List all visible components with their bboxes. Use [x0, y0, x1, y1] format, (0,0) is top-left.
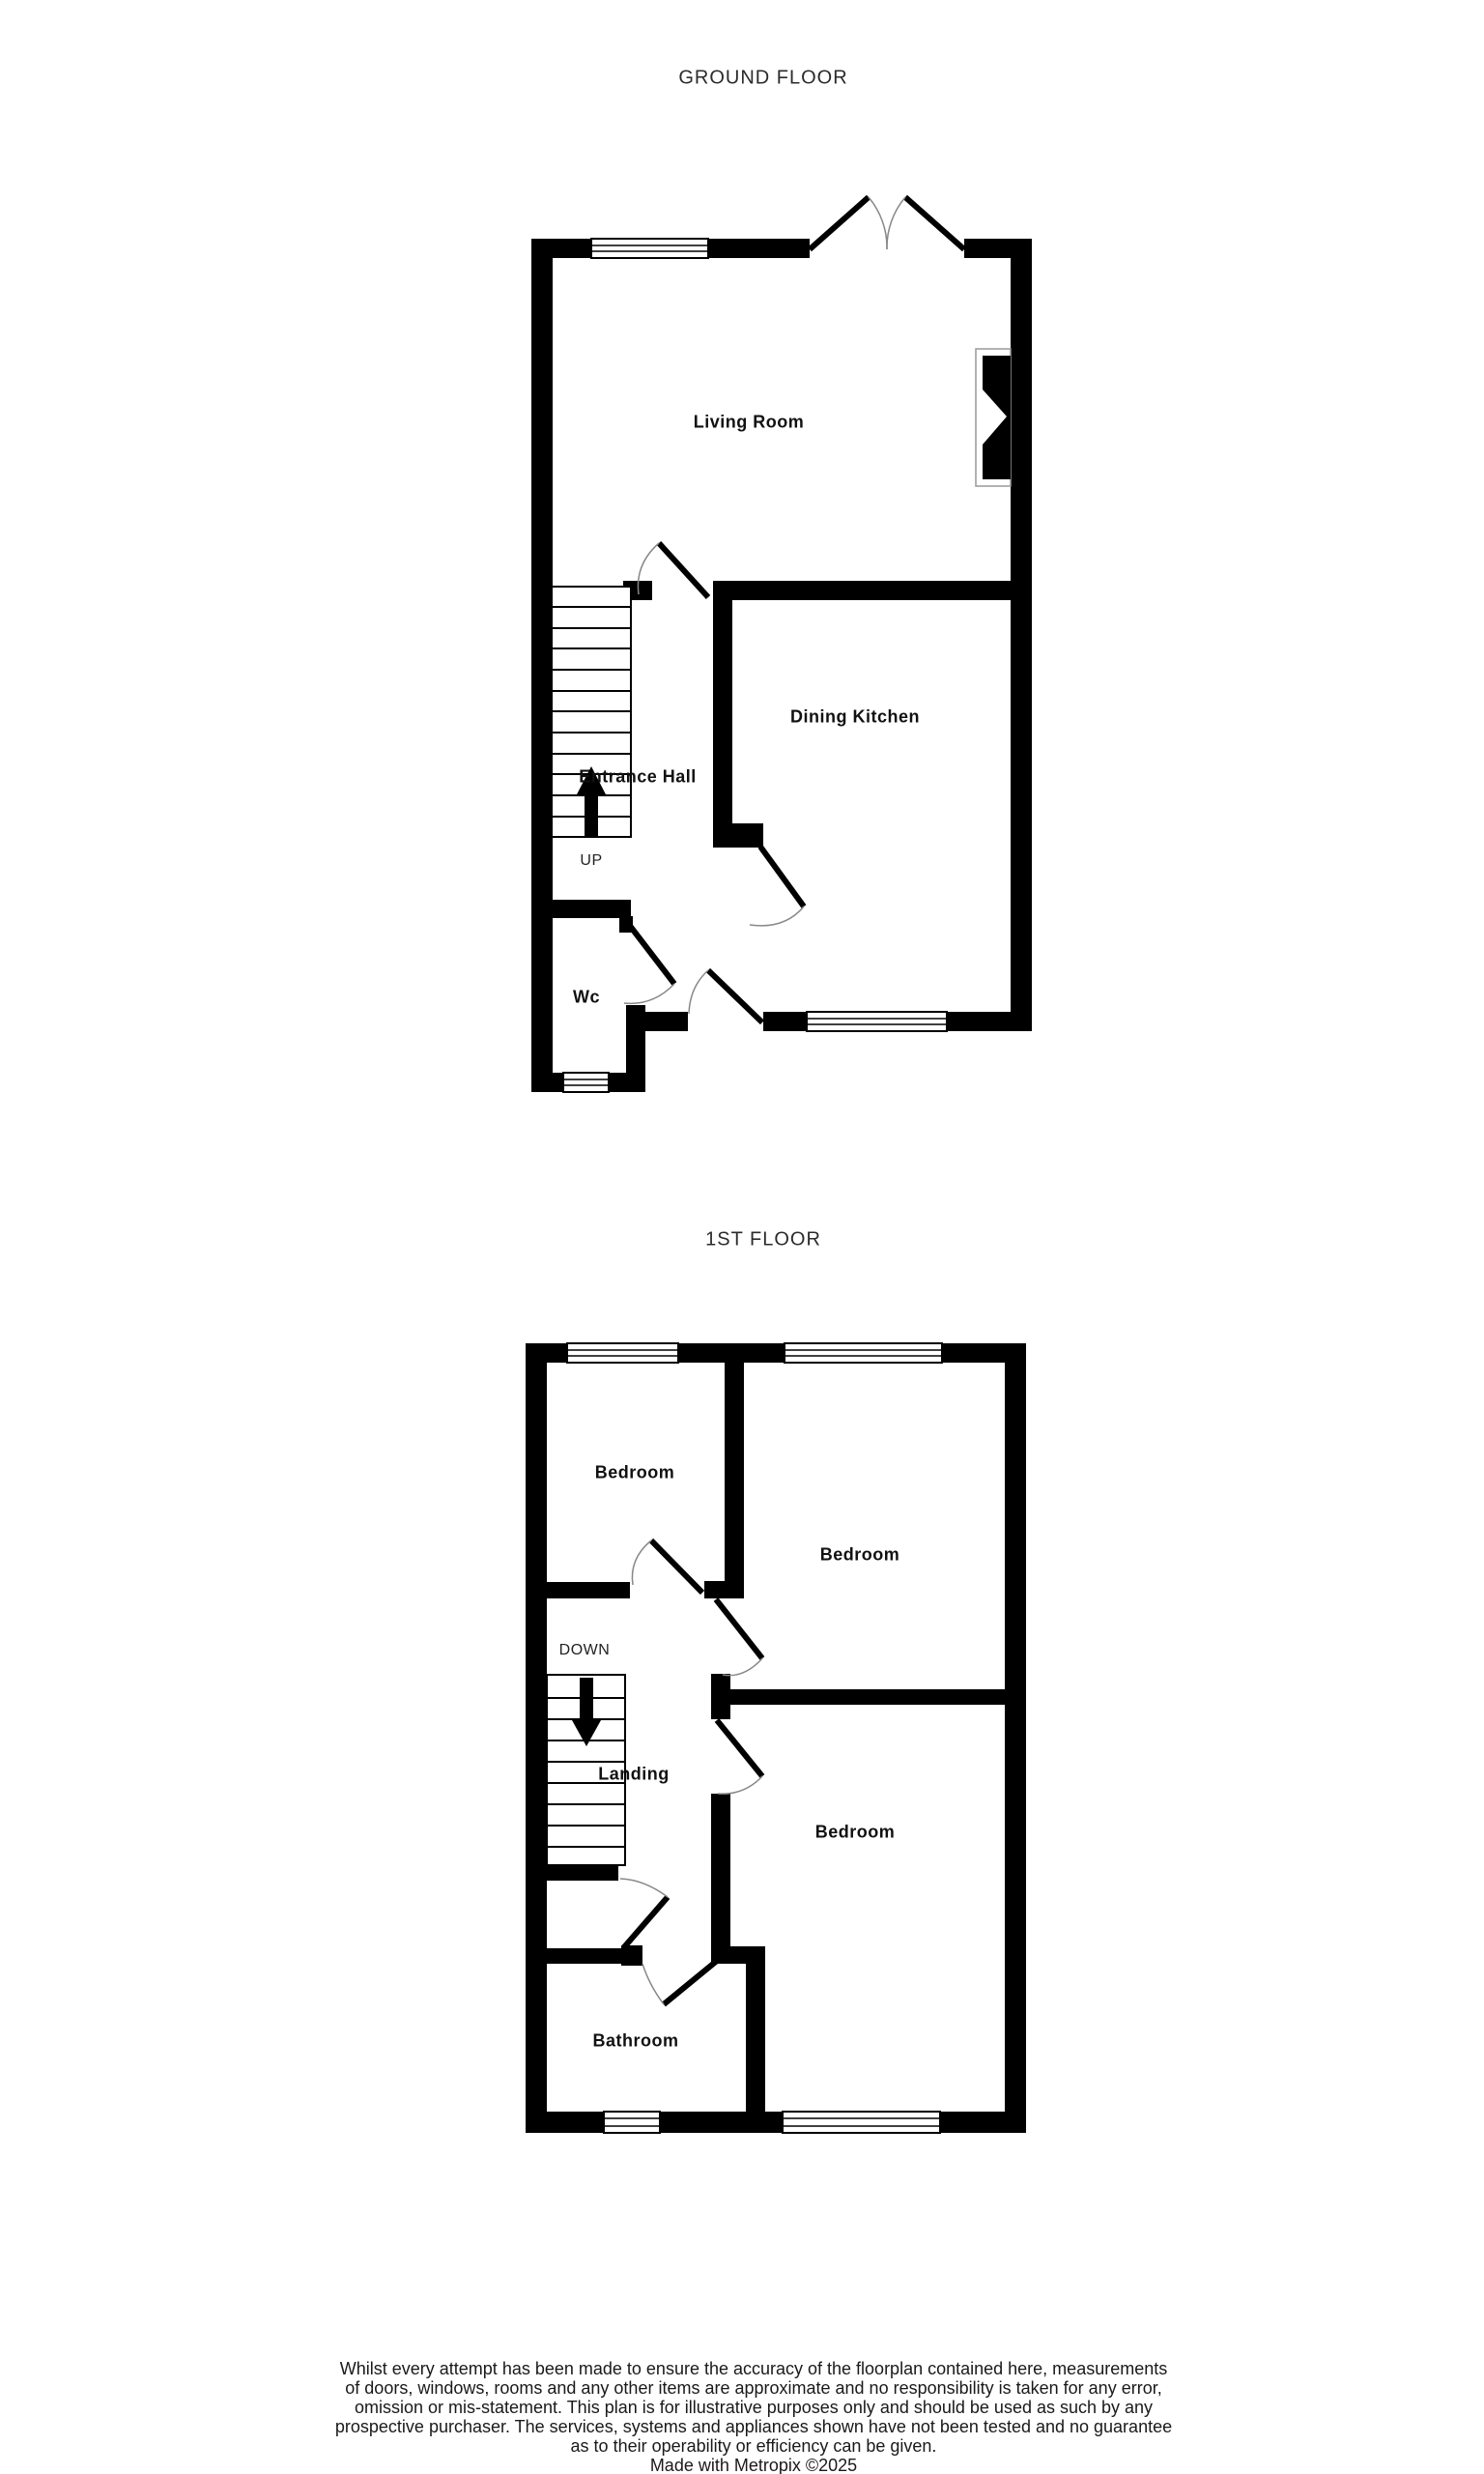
bedroom-back-door	[717, 1720, 762, 1794]
ground-floor-plan	[531, 197, 1032, 1092]
landing-door	[620, 1879, 668, 1948]
ground-floor-title: GROUND FLOOR	[678, 68, 847, 90]
room-label-dining-kitchen: Dining Kitchen	[790, 707, 920, 728]
disclaimer-line: omission or mis-statement. This plan is …	[271, 2398, 1237, 2417]
kitchen-door	[750, 847, 804, 926]
room-label-wc: Wc	[573, 988, 600, 1008]
bathroom-door	[642, 1956, 723, 2004]
french-doors	[810, 197, 964, 249]
room-label-bedroom-front-left: Bedroom	[595, 1463, 675, 1483]
disclaimer-line: Whilst every attempt has been made to en…	[271, 2359, 1237, 2378]
room-label-entrance-hall: Entrance Hall	[579, 767, 697, 788]
metropix-credit: Made with Metropix ©2025	[271, 2456, 1237, 2474]
stairs-up	[552, 587, 631, 837]
window	[604, 2112, 660, 2133]
stairs-up-label: UP	[580, 852, 602, 870]
front-door	[689, 970, 762, 1022]
window	[563, 1073, 609, 1092]
room-label-bedroom-back: Bedroom	[815, 1823, 896, 1843]
wc-door	[624, 926, 674, 1003]
window	[591, 239, 708, 258]
disclaimer-line: prospective purchaser. The services, sys…	[271, 2417, 1237, 2436]
window	[807, 1012, 947, 1031]
floorplan-page: GROUND FLOOR Living Room Dining Kitchen …	[0, 0, 1484, 2474]
window	[567, 1343, 678, 1363]
bedroom-front-left-door	[632, 1540, 702, 1593]
disclaimer-line: as to their operability or efficiency ca…	[271, 2436, 1237, 2456]
room-label-landing: Landing	[598, 1765, 670, 1785]
room-label-bedroom-front-right: Bedroom	[820, 1545, 900, 1566]
disclaimer-line: of doors, windows, rooms and any other i…	[271, 2378, 1237, 2398]
disclaimer: Whilst every attempt has been made to en…	[271, 2359, 1237, 2474]
stairs-down-label: DOWN	[559, 1642, 611, 1659]
room-label-bathroom: Bathroom	[593, 2031, 679, 2052]
fireplace	[976, 349, 1011, 486]
bedroom-front-right-door	[716, 1599, 762, 1676]
window	[783, 2112, 940, 2133]
first-floor-title: 1ST FLOOR	[705, 1229, 821, 1251]
window	[785, 1343, 942, 1363]
room-label-living-room: Living Room	[694, 413, 805, 433]
